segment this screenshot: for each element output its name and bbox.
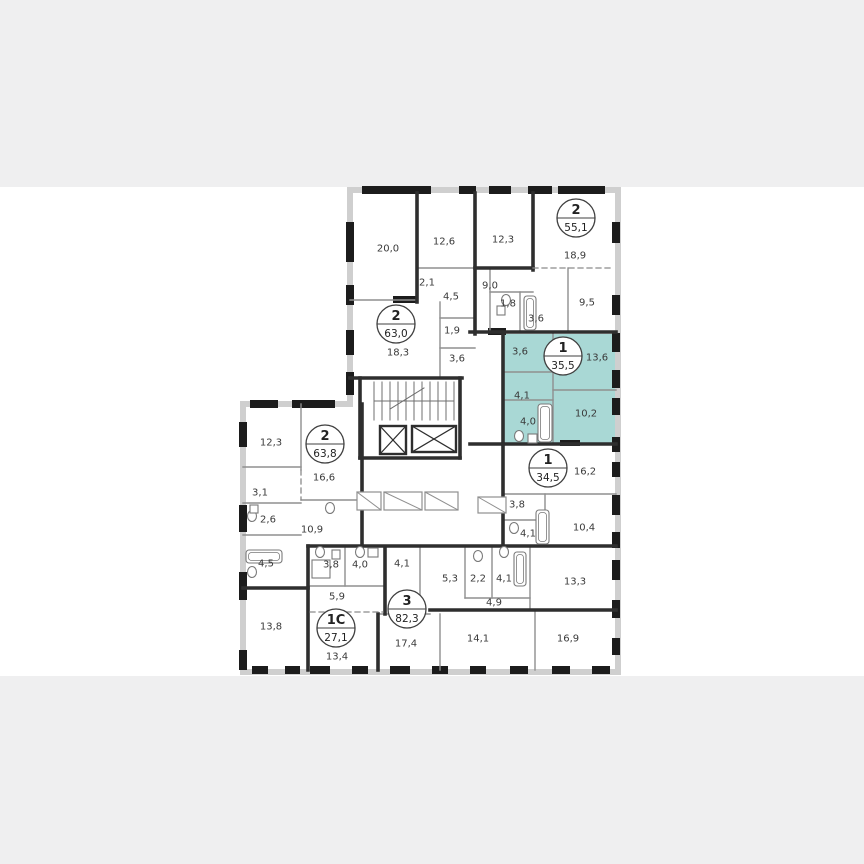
window-block bbox=[250, 400, 278, 408]
apartment-type-label: 3 bbox=[402, 594, 411, 609]
room-area-label: 17,4 bbox=[395, 639, 417, 650]
room-area-label: 18,3 bbox=[387, 348, 409, 359]
apartment-type-label: 2 bbox=[571, 203, 580, 218]
room-area-label: 1,8 bbox=[500, 299, 516, 310]
window-block bbox=[352, 666, 368, 674]
bottom-gray-band bbox=[0, 676, 864, 864]
room-area-label: 20,0 bbox=[377, 244, 399, 255]
sink-icon bbox=[316, 547, 325, 558]
room-area-label: 3,6 bbox=[528, 314, 544, 325]
room-area-label: 10,4 bbox=[573, 523, 595, 534]
apartment-area-label: 35,5 bbox=[551, 360, 574, 372]
room-area-label: 4,9 bbox=[486, 598, 502, 609]
room-area-label: 4,0 bbox=[352, 560, 368, 571]
apartment-type-label: 2 bbox=[391, 309, 400, 324]
window-block bbox=[239, 505, 247, 532]
room-area-label: 4,1 bbox=[514, 391, 530, 402]
apartment-area-label: 34,5 bbox=[536, 472, 559, 484]
toilet-icon bbox=[528, 434, 537, 443]
room-area-label: 12,3 bbox=[492, 235, 514, 246]
sink-icon bbox=[510, 523, 519, 534]
room-area-label: 3,6 bbox=[512, 347, 528, 358]
room-area-label: 4,1 bbox=[394, 559, 410, 570]
window-block bbox=[285, 666, 300, 674]
sink-icon bbox=[248, 567, 257, 578]
room-area-label: 1,9 bbox=[444, 326, 460, 337]
window-block bbox=[310, 666, 330, 674]
room-area-label: 16,9 bbox=[557, 634, 579, 645]
room-area-label: 18,9 bbox=[564, 251, 586, 262]
window-block bbox=[252, 666, 268, 674]
sink-icon bbox=[356, 547, 365, 558]
apartment-type-label: 1C bbox=[327, 613, 346, 628]
room-area-label: 12,3 bbox=[260, 438, 282, 449]
room-area-label: 2,6 bbox=[260, 515, 276, 526]
room-area-label: 16,6 bbox=[313, 473, 335, 484]
window-block bbox=[558, 186, 605, 194]
window-block bbox=[390, 666, 410, 674]
window-block bbox=[612, 495, 620, 515]
room-area-label: 14,1 bbox=[467, 634, 489, 645]
room-area-label: 10,2 bbox=[575, 409, 597, 420]
window-block bbox=[612, 560, 620, 580]
apartment-type-label: 1 bbox=[558, 341, 567, 356]
top-gray-band bbox=[0, 0, 864, 187]
room-area-label: 4,1 bbox=[520, 529, 536, 540]
apartment-area-label: 63,8 bbox=[313, 448, 336, 460]
window-block bbox=[612, 370, 620, 388]
room-area-label: 10,9 bbox=[301, 525, 323, 536]
room-area-label: 5,3 bbox=[442, 574, 458, 585]
window-block bbox=[612, 295, 620, 315]
window-block bbox=[362, 186, 431, 194]
room-area-label: 12,6 bbox=[433, 237, 455, 248]
apartment-type-label: 1 bbox=[543, 453, 552, 468]
window-block bbox=[612, 462, 620, 477]
window-block bbox=[239, 650, 247, 670]
room-area-label: 13,3 bbox=[564, 577, 586, 588]
room-area-label: 3,8 bbox=[323, 560, 339, 571]
room-area-label: 3,6 bbox=[449, 354, 465, 365]
sink-icon bbox=[326, 503, 335, 514]
room-area-label: 4,5 bbox=[443, 292, 459, 303]
window-block bbox=[552, 666, 570, 674]
bathtub-icon bbox=[536, 510, 549, 544]
room-area-label: 13,6 bbox=[586, 353, 608, 364]
apartment-area-label: 82,3 bbox=[395, 613, 418, 625]
toilet-icon bbox=[368, 548, 378, 557]
window-block bbox=[292, 400, 335, 408]
floor-plan-page: 20,012,612,318,92,14,59,01,83,69,51,918,… bbox=[0, 0, 864, 864]
window-block bbox=[592, 666, 610, 674]
floor-plan: 20,012,612,318,92,14,59,01,83,69,51,918,… bbox=[0, 0, 864, 864]
apartment-area-label: 27,1 bbox=[324, 632, 347, 644]
window-block bbox=[510, 666, 528, 674]
toilet-icon bbox=[250, 505, 258, 513]
window-block bbox=[346, 372, 354, 395]
sink-icon bbox=[500, 547, 509, 558]
sink-icon bbox=[515, 431, 524, 442]
window-block bbox=[239, 572, 247, 600]
window-block bbox=[612, 638, 620, 655]
room-area-label: 16,2 bbox=[574, 467, 596, 478]
window-block bbox=[346, 222, 354, 262]
toilet-icon bbox=[332, 550, 340, 559]
window-block bbox=[239, 422, 247, 447]
window-block bbox=[346, 285, 354, 305]
window-block bbox=[612, 398, 620, 415]
apartment-type-label: 2 bbox=[320, 429, 329, 444]
window-block bbox=[470, 666, 486, 674]
apartment-area-label: 63,0 bbox=[384, 328, 407, 340]
room-area-label: 3,1 bbox=[252, 488, 268, 499]
room-area-label: 4,1 bbox=[496, 574, 512, 585]
apartment-area-label: 55,1 bbox=[564, 222, 587, 234]
window-block bbox=[489, 186, 511, 194]
room-area-label: 4,0 bbox=[520, 417, 536, 428]
room-area-label: 13,4 bbox=[326, 652, 348, 663]
room-area-label: 2,1 bbox=[419, 278, 435, 289]
room-area-label: 3,8 bbox=[509, 500, 525, 511]
room-area-label: 5,9 bbox=[329, 592, 345, 603]
room-area-label: 13,8 bbox=[260, 622, 282, 633]
room-area-label: 2,2 bbox=[470, 574, 486, 585]
room-area-label: 9,0 bbox=[482, 281, 498, 292]
window-block bbox=[612, 333, 620, 352]
sink-icon bbox=[474, 551, 483, 562]
bathtub-icon bbox=[514, 552, 526, 586]
room-area-label: 9,5 bbox=[579, 298, 595, 309]
room-area-label: 4,5 bbox=[258, 559, 274, 570]
window-block bbox=[612, 222, 620, 243]
window-block bbox=[346, 330, 354, 355]
